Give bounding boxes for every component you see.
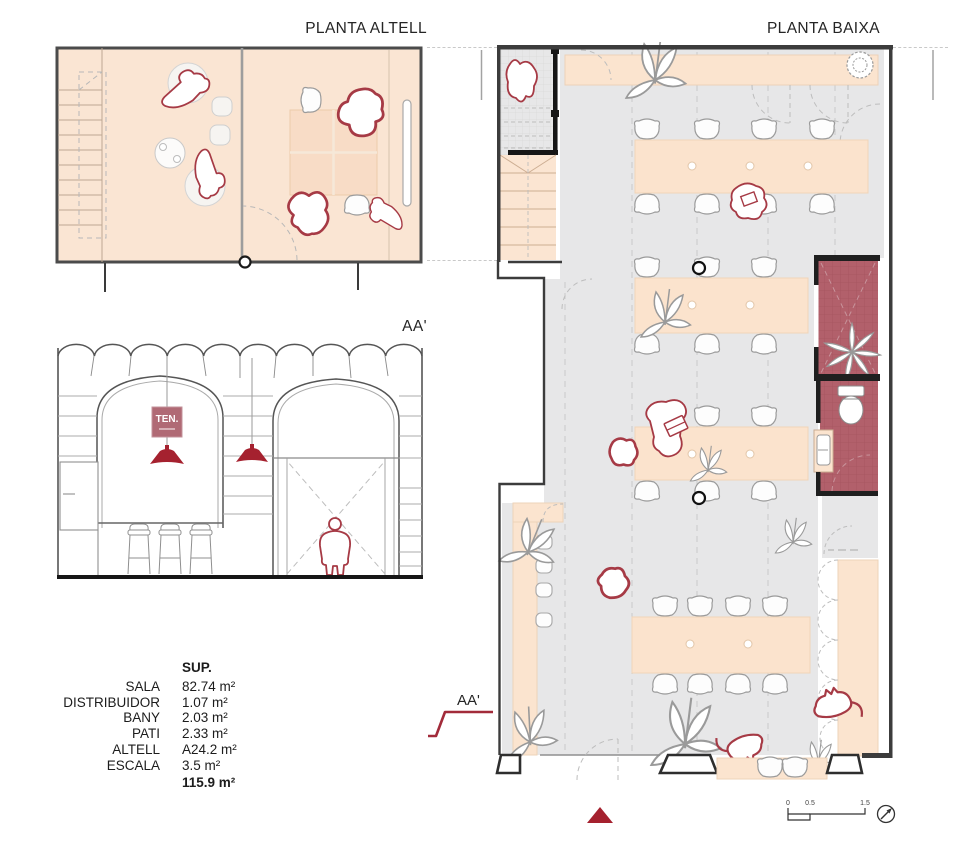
- drawing-sheet: PLANTA ALTELL PLANTA BAIXA AA': [0, 0, 960, 852]
- ten-sign: TEN.: [152, 407, 182, 437]
- distribuidor-person: [506, 60, 537, 102]
- right-bench: [818, 560, 878, 756]
- scale-tick-05: 0.5: [805, 800, 815, 807]
- rear-vestibule: [822, 496, 878, 558]
- bar-stool: [128, 524, 150, 574]
- surface-row: ALTELL A24.2 m²: [42, 742, 282, 758]
- scale-tick-15: 1.5: [860, 800, 870, 807]
- pendant-lamp: [150, 444, 268, 464]
- surface-row: PATI 2.33 m²: [42, 726, 282, 742]
- north-indicator-icon: [878, 806, 895, 823]
- baixa-plan-title: PLANTA BAIXA: [693, 20, 880, 38]
- scale-tick-0: 0: [786, 800, 790, 807]
- section-cut-label: AA': [457, 692, 480, 709]
- surface-row: SALA 82.74 m²: [42, 679, 282, 695]
- baixa-floor-plan: 0 0.5 1.5: [480, 42, 960, 835]
- surface-row: DISTRIBUIDOR 1.07 m²: [42, 695, 282, 711]
- entrance-marker-triangle: [587, 807, 613, 823]
- baixa-stairs: [500, 155, 556, 260]
- column: [693, 492, 705, 504]
- vault-ribs: [91, 356, 388, 378]
- section-cabinet: [60, 462, 98, 576]
- section-ground: [57, 575, 423, 579]
- bar-stool: [159, 524, 181, 574]
- altell-floor-plan: [55, 42, 427, 298]
- ten-sign-text: TEN.: [156, 414, 179, 425]
- altell-column: [240, 257, 251, 268]
- altell-plan-title: PLANTA ALTELL: [240, 20, 427, 38]
- column: [693, 262, 705, 274]
- surface-table-header: SUP.: [42, 660, 282, 676]
- section-person: [320, 518, 350, 575]
- surface-header-text: SUP.: [182, 660, 212, 676]
- bush-cluster: [847, 52, 873, 78]
- surface-table: SUP. SALA 82.74 m² DISTRIBUIDOR 1.07 m² …: [42, 660, 282, 790]
- top-bench: [565, 55, 878, 85]
- altell-window: [403, 100, 411, 206]
- surface-row: BANY 2.03 m²: [42, 710, 282, 726]
- vaulted-ceiling: [58, 344, 422, 356]
- surface-table-total: 115.9 m²: [42, 775, 282, 791]
- surface-row: ESCALA 3.5 m²: [42, 758, 282, 774]
- pati: [814, 255, 881, 381]
- section-drawing: TEN.: [55, 318, 427, 586]
- distribuidor-wall: [553, 49, 558, 153]
- bany: [814, 381, 878, 496]
- bar-stool: [190, 524, 212, 574]
- scale-bar: 0 0.5 1.5: [786, 800, 870, 820]
